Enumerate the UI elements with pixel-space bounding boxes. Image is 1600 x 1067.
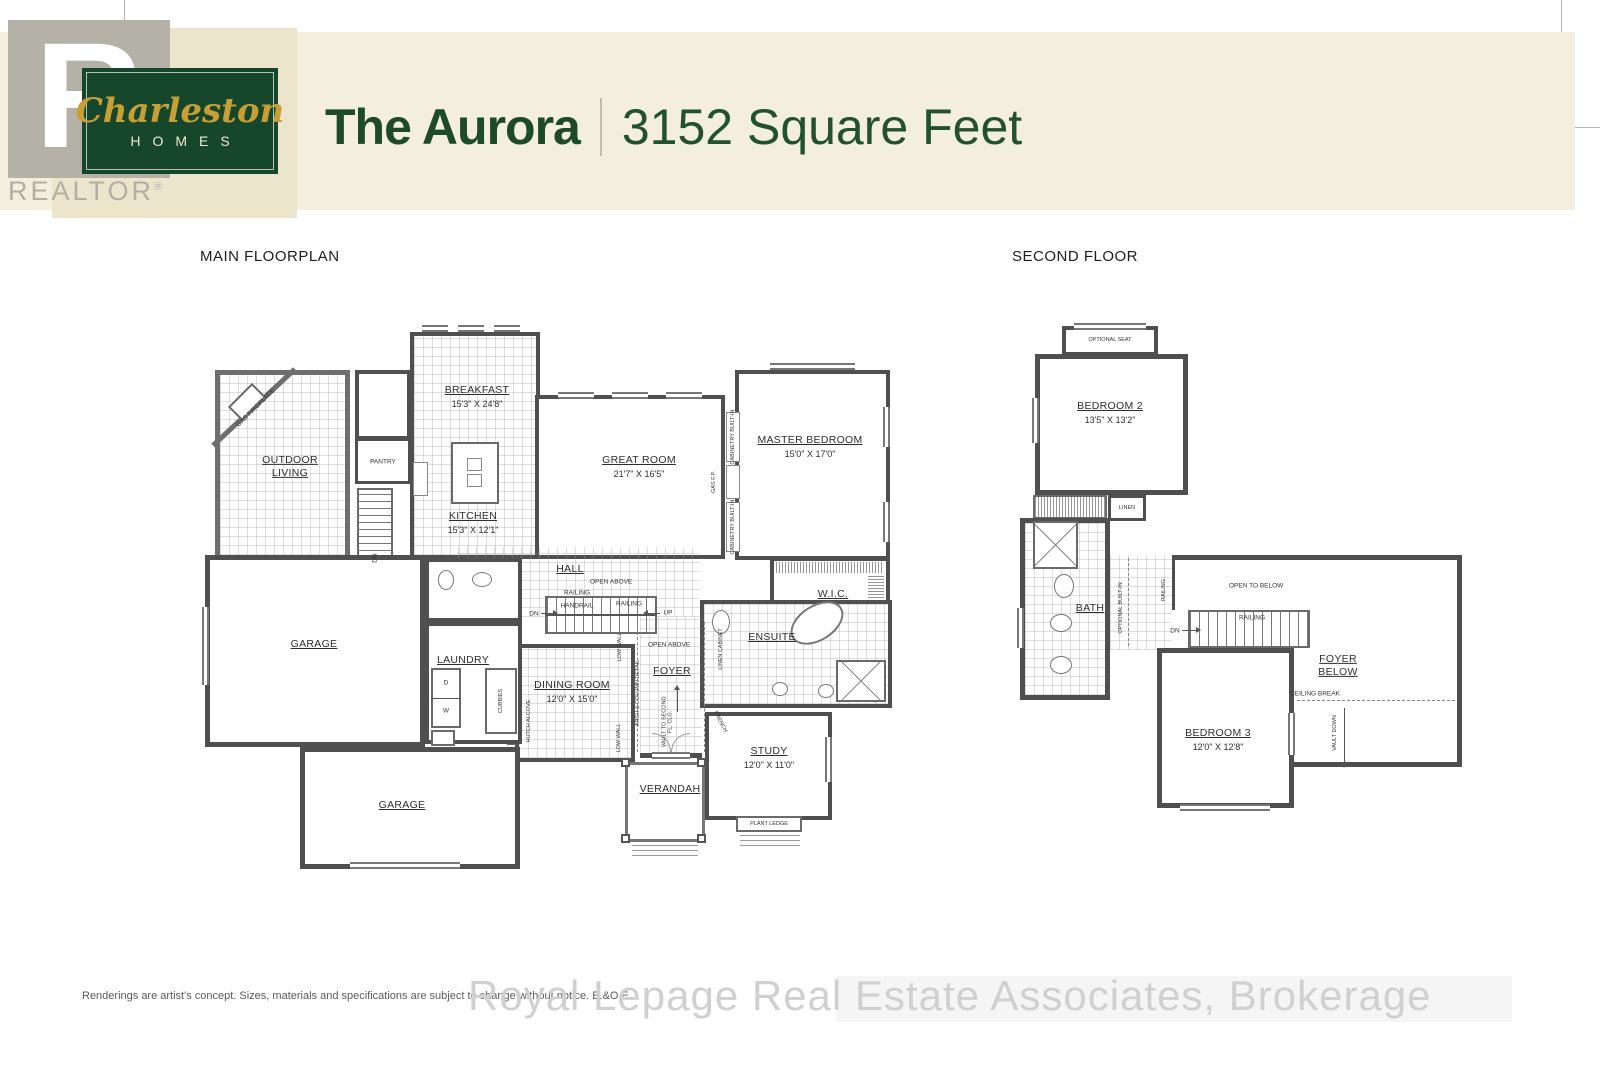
wic-label: W.I.C.: [818, 588, 848, 600]
washer-label: W: [443, 707, 449, 714]
railing-label: RAILING: [616, 600, 642, 607]
dining-room-dims: 12'0" X 15'0": [547, 694, 598, 704]
verandah-post: [621, 834, 630, 843]
master-bedroom-room: [735, 370, 890, 560]
laundry-label: LAUNDRY: [437, 654, 489, 666]
gas-fireplace-unit: [726, 465, 740, 499]
window: [458, 325, 484, 332]
bedroom3-dims: 12'0" X 12'8": [1193, 742, 1244, 752]
floorplan-sheet: R Charleston HOMES REALTOR® The Aurora 3…: [0, 0, 1600, 1067]
bedroom2-dims: 13'5" X 13'2": [1085, 415, 1136, 425]
master-bedroom-dims: 15'0" X 17'0": [785, 449, 836, 459]
window: [883, 502, 890, 542]
rear-entry: [355, 370, 411, 440]
bay-window: [770, 363, 855, 370]
title-divider: [600, 98, 602, 156]
vault-down-label: VAULT DOWN: [1332, 715, 1338, 751]
cabinetry-label: CABINETRY BUILT-IN: [730, 498, 736, 556]
dn-label: DN: [1170, 627, 1179, 634]
bedroom3-label: BEDROOM 3: [1185, 727, 1251, 739]
toilet: [1054, 574, 1074, 598]
verandah-room: [625, 762, 705, 842]
up-arrow-line: [648, 613, 660, 614]
kitchen-label: KITCHEN: [449, 510, 497, 522]
ceiling-break-label: CEILING BREAK: [1290, 690, 1340, 697]
railing-label: RAILING: [564, 589, 590, 596]
verandah-post: [697, 758, 706, 767]
garage-front-room: [205, 555, 425, 747]
realtor-wordmark: REALTOR®: [8, 176, 165, 207]
second-floor-heading: SECOND FLOOR: [1012, 248, 1138, 265]
hall-label: HALL: [556, 563, 583, 575]
verandah-post: [697, 834, 706, 843]
cubbies-label: CUBBIES: [498, 689, 504, 713]
main-floorplan-heading: MAIN FLOORPLAN: [200, 248, 340, 265]
main-floorplan-drawing: GAS FIREPLACE OUTDOOR LIVING PANTRY DN B…: [200, 312, 975, 880]
master-bedroom-label: MASTER BEDROOM: [757, 434, 862, 446]
dining-room-label: DINING ROOM: [534, 679, 610, 691]
pantry-label: PANTRY: [370, 458, 396, 465]
island-sink: [467, 458, 482, 471]
charleston-homes-logo: Charleston HOMES: [82, 68, 278, 174]
garage-front-label: GARAGE: [291, 638, 338, 650]
stair-rail: [545, 614, 657, 616]
arch-column-label: ARCH & COLUMN DETAIL: [635, 660, 641, 727]
open-to-below-label: OPEN TO BELOW: [1229, 582, 1275, 589]
verandah-post: [621, 758, 630, 767]
toilet: [438, 570, 454, 590]
washer-dryer-divider: [431, 698, 461, 699]
vault-down-line: [1344, 708, 1345, 763]
window: [612, 392, 648, 399]
sheet-title: The Aurora 3152 Square Feet: [325, 98, 1022, 156]
square-footage: 3152 Square Feet: [622, 98, 1022, 156]
brand-word-text: HOMES: [118, 133, 241, 149]
garage-door-opening: [202, 607, 209, 685]
breakfast-dims: 15'3" X 24'8": [452, 399, 503, 409]
cabinetry-label: CABINETRY BUILT-IN: [730, 408, 736, 466]
open-above-label: OPEN ABOVE: [590, 578, 626, 585]
kitchen-island: [451, 442, 499, 504]
bath-label: BATH: [1076, 602, 1104, 614]
low-wall-label: LOW WALL: [616, 724, 622, 753]
linen-cabinet-label: LINEN CABINET: [718, 620, 724, 678]
window: [422, 325, 448, 332]
railing-label: RAILING: [1161, 579, 1167, 601]
shower: [1033, 521, 1078, 569]
shower: [836, 660, 886, 702]
stairs-dn-label: DN: [371, 553, 378, 562]
model-name: The Aurora: [325, 98, 580, 156]
bay-window: [1180, 804, 1270, 811]
vault-arrow-line: [677, 690, 678, 712]
window: [494, 325, 520, 332]
sink: [472, 572, 492, 587]
window: [666, 392, 702, 399]
brokerage-watermark: Royal Lepage Real Estate Associates, Bro…: [468, 972, 1432, 1020]
right-wall: [1457, 555, 1462, 767]
upper-wall: [1172, 555, 1462, 560]
up-label: UP: [663, 609, 672, 616]
foyer-below-wall: [1294, 762, 1462, 767]
logo-inner-border: Charleston HOMES: [86, 72, 274, 170]
front-steps: [740, 834, 800, 846]
garage-door-opening: [350, 862, 460, 869]
window: [1017, 608, 1024, 648]
outdoor-living-label: OUTDOOR LIVING: [257, 454, 323, 480]
window: [825, 737, 832, 782]
handrail-label: HANDRAIL: [561, 602, 594, 609]
up-arrow: [643, 610, 648, 616]
dryer-label: D: [444, 679, 449, 686]
plant-ledge-label: PLANT LEDGE: [750, 821, 788, 827]
brand-script-text: Charleston: [76, 94, 285, 128]
range: [413, 462, 428, 496]
study-dims: 12'0" X 11'0": [744, 760, 794, 770]
sink: [772, 682, 788, 696]
optional-built-in-label: OPTIONAL BUILT-IN: [1118, 579, 1124, 637]
bay-window: [1074, 323, 1146, 330]
optional-built-in-line: [1128, 558, 1129, 646]
registered-mark: ®: [154, 181, 165, 193]
foyer-below-label: FOYER BELOW: [1312, 653, 1364, 679]
railing-label: RAILING: [1239, 614, 1265, 621]
closet-rod: [776, 562, 884, 573]
ceiling-break-line: [1297, 700, 1455, 701]
great-room-dims: 21'7" X 16'5": [614, 469, 665, 479]
bedroom2-label: BEDROOM 2: [1077, 400, 1143, 412]
front-door-opening: [652, 752, 690, 759]
verandah-label: VERANDAH: [640, 783, 701, 795]
bedroom2-closet: [1033, 495, 1107, 519]
optional-seat-label: OPTIONAL SEAT: [1088, 337, 1131, 343]
basement-stairs: [357, 488, 393, 560]
sink: [1050, 656, 1072, 674]
dn-arrow: [553, 610, 558, 616]
dn-arrow-line: [541, 613, 553, 614]
gas-fp-label: GAS F.P.: [711, 471, 717, 493]
kitchen-dims: 15'3" X 12'1": [448, 525, 499, 535]
foyer-label: FOYER: [653, 665, 691, 677]
dn-arrow-line: [1182, 630, 1196, 631]
vault-label: VAULT TO SECOND FL. CLG.: [662, 693, 675, 751]
great-room-label: GREAT ROOM: [602, 454, 676, 466]
window: [558, 392, 594, 399]
vault-down-arrow: [1341, 763, 1347, 768]
verandah-steps: [632, 845, 698, 856]
dn-label: DN: [529, 610, 538, 617]
second-floor-drawing: OPTIONAL SEAT BEDROOM 2 13'5" X 13'2" LI…: [1012, 318, 1472, 878]
railing-wall: [1172, 560, 1175, 610]
linen-label: LINEN: [1119, 505, 1135, 511]
breakfast-label: BREAKFAST: [445, 384, 510, 396]
window: [883, 407, 890, 447]
sink: [1050, 614, 1072, 632]
hutch-alcove-label: HUTCH ALCOVE: [526, 692, 532, 750]
low-wall-label: LOW WALL: [617, 633, 623, 662]
vault-arrow: [674, 685, 680, 690]
open-above-label: OPEN ABOVE: [648, 641, 684, 648]
sink: [818, 684, 834, 698]
study-label: STUDY: [750, 745, 787, 757]
laundry-sink: [431, 730, 455, 746]
island-sink: [467, 474, 482, 487]
ensuite-label: ENSUITE: [748, 631, 796, 643]
garage-rear-label: GARAGE: [379, 799, 426, 811]
dn-arrow: [1196, 627, 1201, 633]
powder-room: [425, 558, 522, 622]
window: [1288, 713, 1295, 755]
window: [1032, 398, 1039, 443]
